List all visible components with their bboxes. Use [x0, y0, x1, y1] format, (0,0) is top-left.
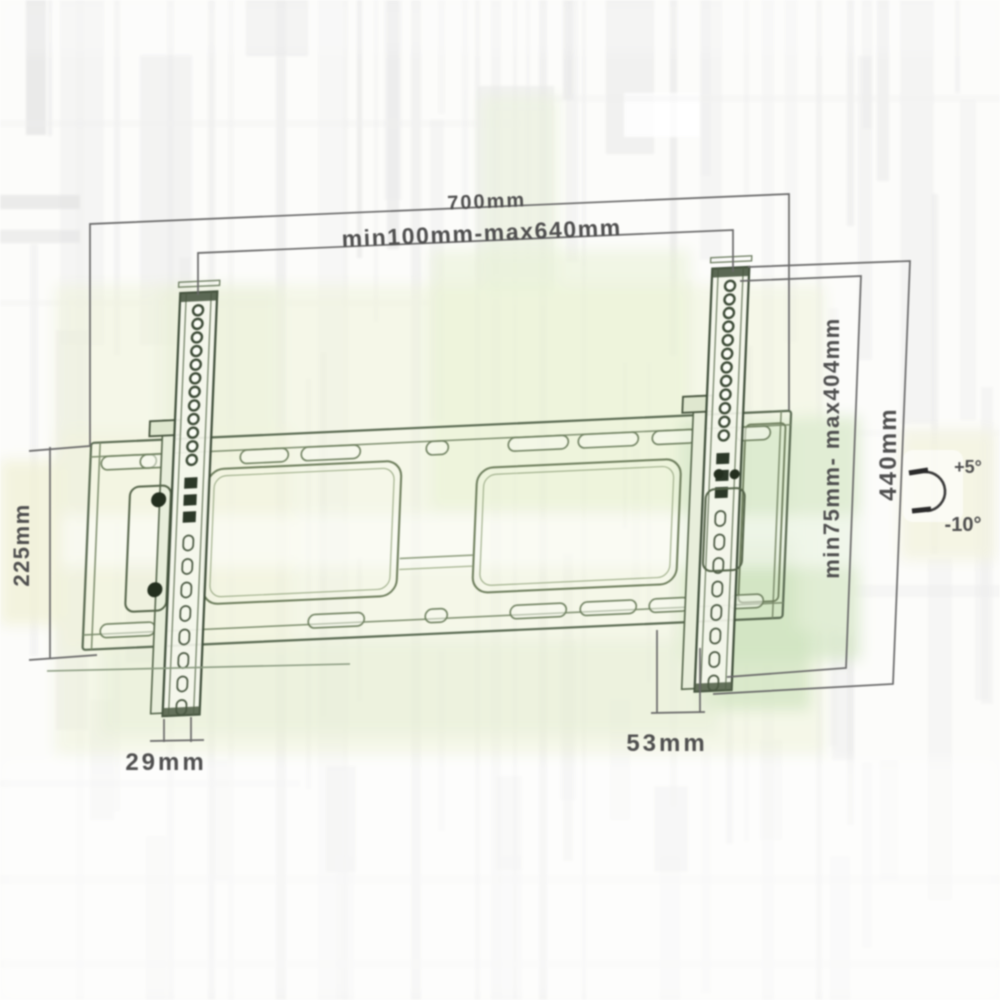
svg-text:min75mm- max404mm: min75mm- max404mm: [819, 317, 844, 579]
svg-text:700mm: 700mm: [447, 189, 527, 214]
svg-text:53mm: 53mm: [626, 730, 707, 757]
svg-text:-10°: -10°: [945, 514, 982, 536]
svg-text:+5°: +5°: [954, 457, 982, 477]
svg-text:225mm: 225mm: [9, 503, 34, 586]
svg-text:440mm: 440mm: [875, 407, 902, 501]
svg-text:29mm: 29mm: [125, 749, 206, 776]
